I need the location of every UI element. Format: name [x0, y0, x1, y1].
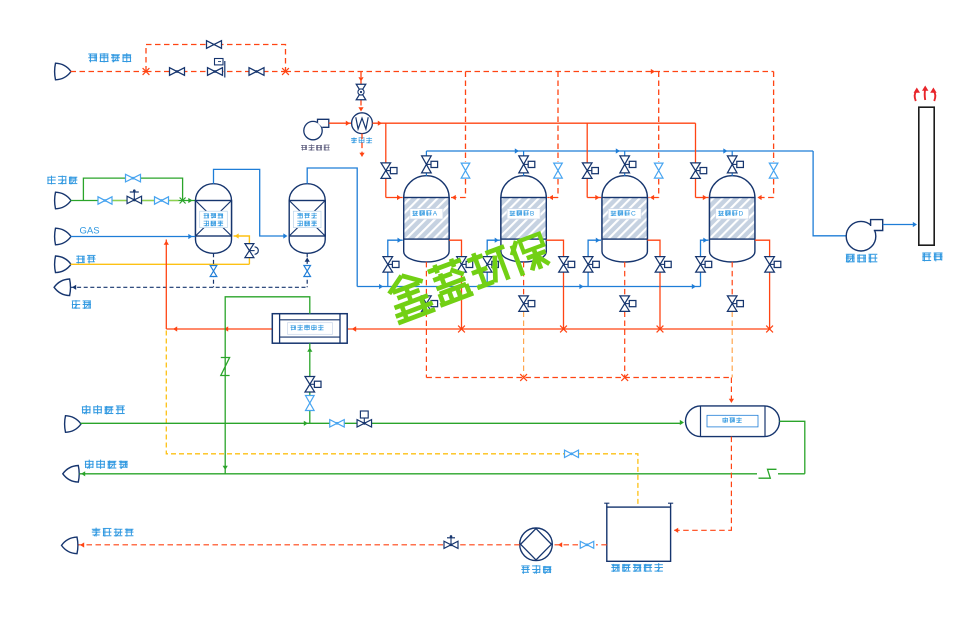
svg-text:C: C	[631, 210, 636, 217]
svg-text:A: A	[433, 210, 438, 217]
svg-text:D: D	[738, 210, 743, 217]
svg-text:B: B	[530, 210, 535, 217]
svg-text:GAS: GAS	[80, 226, 100, 237]
